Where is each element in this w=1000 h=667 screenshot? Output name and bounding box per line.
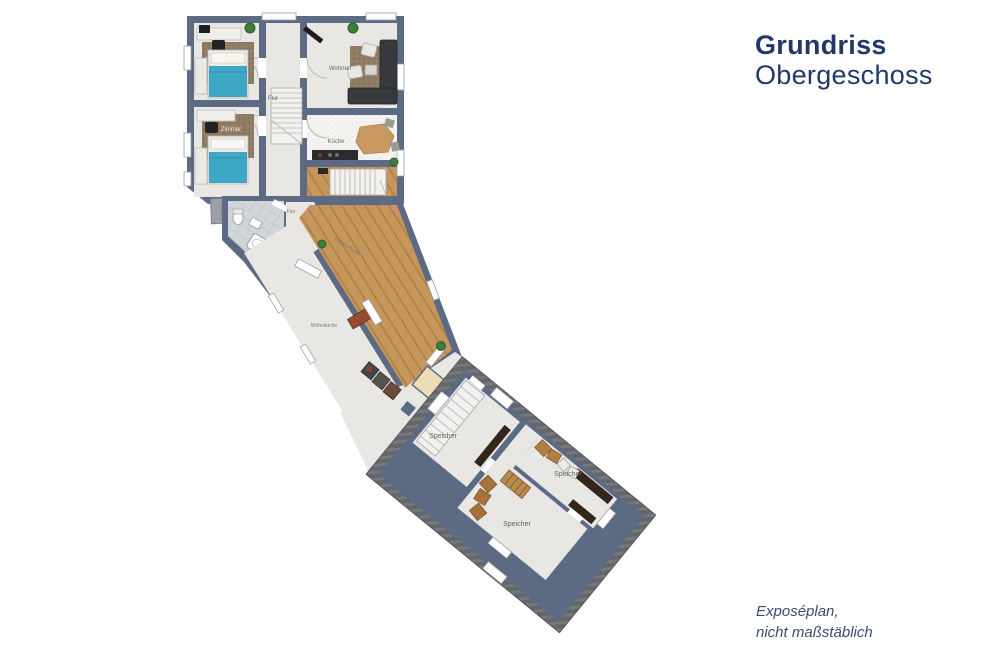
room-label-bedroom-1: Zimmer (221, 59, 241, 65)
room-label-living: Wohnen (329, 66, 351, 72)
toilet (233, 209, 243, 225)
room-label-attic-3: Speicher (503, 521, 531, 528)
room-label-open-kitchen: Wohnküche (311, 323, 338, 329)
bed (208, 136, 248, 184)
room-label-attic-2: Speicher (554, 471, 582, 478)
room-label-bedroom-2: Zimmer (221, 127, 241, 133)
plant (318, 240, 326, 248)
bedroom-2-furniture (195, 110, 254, 184)
title-line-2: Obergeschoss (755, 60, 933, 90)
title-line-1: Grundriss (755, 30, 933, 60)
plant (437, 342, 446, 351)
room-label-hall-upper: Flur (268, 96, 278, 102)
floorplan-page: Zimmer Zimmer Flur Wohnen Küche Flur Tre… (0, 0, 1000, 667)
bed (208, 50, 248, 98)
room-label-hall-mid: Flur (287, 209, 296, 215)
plan-title: Grundriss Obergeschoss (755, 30, 933, 90)
room-label-kitchen: Küche (327, 139, 345, 145)
footnote-line-2: nicht maßstäblich (756, 622, 873, 643)
upper-floor-block (184, 13, 404, 224)
plan-footnote: Exposéplan, nicht maßstäblich (756, 601, 873, 643)
footnote-line-1: Exposéplan, (756, 601, 873, 622)
room-label-attic-1: Speicher (429, 433, 457, 440)
floor-plan-drawing: Zimmer Zimmer Flur Wohnen Küche Flur Tre… (0, 0, 1000, 667)
